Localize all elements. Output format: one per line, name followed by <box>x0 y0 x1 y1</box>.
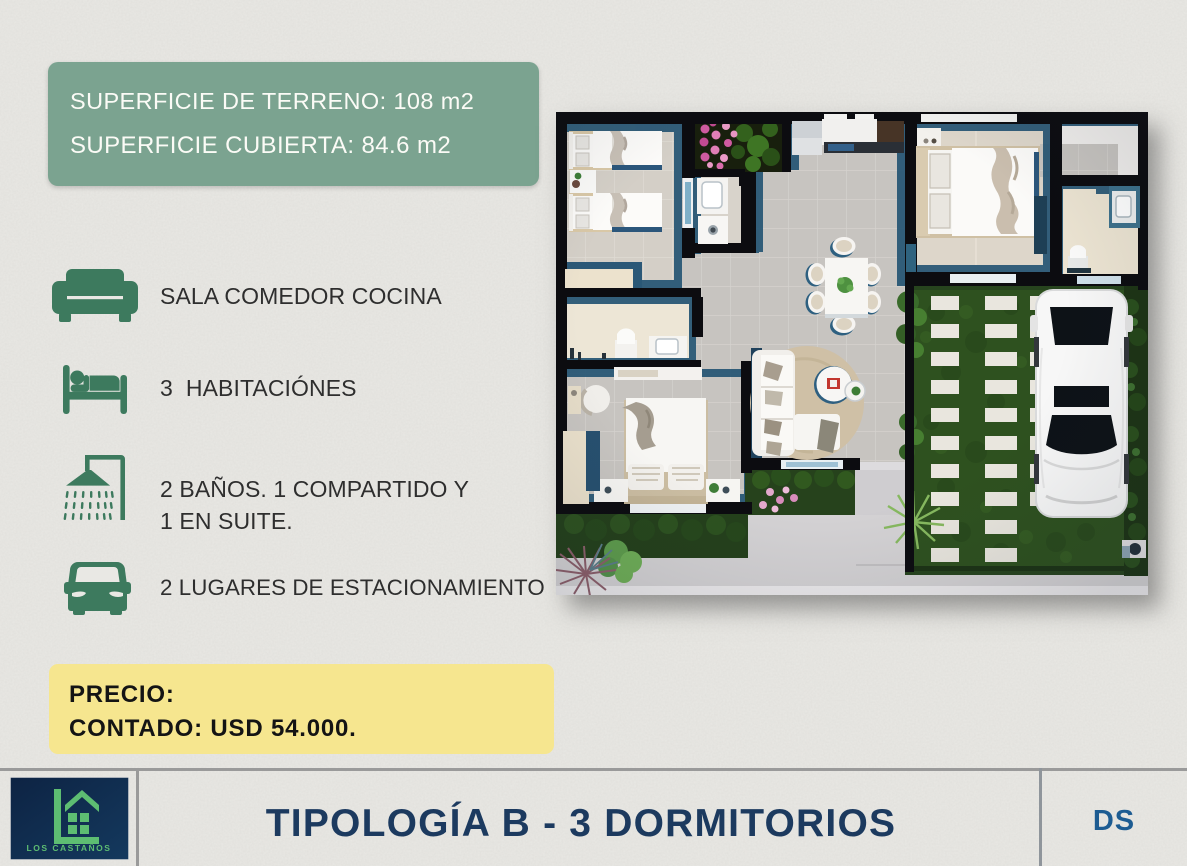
svg-text:LOS CASTAÑOS: LOS CASTAÑOS <box>27 843 112 853</box>
